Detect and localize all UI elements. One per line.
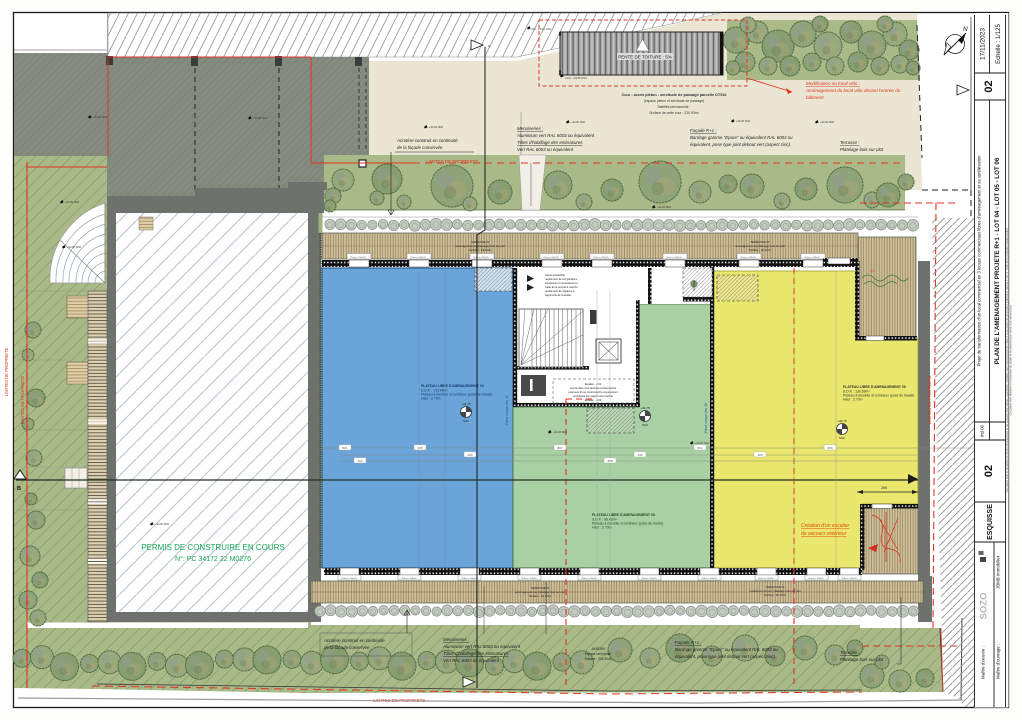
svg-text:Châssis 190x95: Châssis 190x95 — [461, 578, 477, 580]
svg-text:17/11/2023: 17/11/2023 — [980, 28, 987, 60]
svg-text:+34.00 NGF: +34.00 NGF — [657, 205, 672, 209]
svg-text:JBMB Immobilier: JBMB Immobilier — [996, 555, 1001, 589]
svg-text:La première et la dernière con: La première et la dernière contremarche — [570, 386, 617, 390]
svg-text:ESQUISSE: ESQUISSE — [987, 504, 994, 540]
svg-text:Ind 00: Ind 00 — [980, 424, 985, 437]
svg-text:PENTE DE TOITURE : 5%: PENTE DE TOITURE : 5% — [618, 55, 672, 60]
svg-text:Haut : 2.70m: Haut : 2.70m — [843, 398, 863, 402]
svg-text:+34.00 NGF: +34.00 NGF — [820, 120, 835, 124]
svg-text:Châssis 190x95: Châssis 190x95 — [473, 257, 489, 259]
svg-text:Statifiée permanente: Statifiée permanente — [657, 105, 688, 109]
svg-text:B: B — [17, 486, 21, 492]
svg-text:02: 02 — [983, 465, 995, 477]
svg-text:Tôles d'habillage des embrasur: Tôles d'habillage des embrasures — [443, 651, 509, 656]
svg-text:Création d'un escalier: Création d'un escalier — [801, 523, 850, 529]
svg-text:Terrasse :: Terrasse : — [840, 140, 860, 145]
svg-text:Façade R+1 :: Façade R+1 : — [675, 640, 702, 645]
svg-text:Acrotère construit en continui: Acrotère construit en continuité — [396, 138, 458, 143]
svg-text:Surface : 43.23m²: Surface : 43.23m² — [469, 248, 491, 252]
svg-text:N°: PC 34172 22 M0276: N°: PC 34172 22 M0276 — [175, 555, 251, 563]
svg-text:Tôles d'habillage des embrasur: Tôles d'habillage des embrasures — [517, 140, 583, 145]
svg-text:LIMITES DE PROPRIETE: LIMITES DE PROPRIETE — [927, 375, 932, 424]
svg-text:Aménagement du local vélo deva: Aménagement du local vélo devant l'entré… — [805, 88, 901, 93]
svg-text:Châssis 190x95: Châssis 190x95 — [593, 257, 609, 259]
svg-text:+34.00 NGF: +34.00 NGF — [93, 115, 108, 119]
svg-text:+34.75: +34.75 — [461, 402, 471, 406]
svg-text:Châssis 190x95: Châssis 190x95 — [521, 578, 537, 580]
svg-text:+34.00 NGF: +34.00 NGF — [553, 430, 568, 434]
svg-text:+34.75: +34.75 — [837, 419, 847, 423]
svg-text:équivalent, pose type joint de: équivalent, pose type joint debout vert … — [675, 654, 776, 659]
svg-text:Ces plans sont destinés à l'in: Ces plans sont destinés à l'instruction … — [1009, 304, 1013, 415]
svg-text:Menuiseries :: Menuiseries : — [443, 637, 470, 642]
svg-text:PLATEAU LIBRE D'AMENAGEMENT 06: PLATEAU LIBRE D'AMENAGEMENT 06 — [843, 385, 906, 389]
svg-text:Menuiseries :: Menuiseries : — [517, 126, 544, 131]
svg-text:+34.75: +34.75 — [640, 406, 650, 410]
svg-text:Châssis 190x95: Châssis 190x95 — [804, 257, 820, 259]
svg-text:Haut : 2.70m: Haut : 2.70m — [421, 397, 441, 401]
svg-text:+34.00 NGF: +34.00 NGF — [155, 522, 170, 526]
svg-text:Surface : 52.15m²: Surface : 52.15m² — [529, 594, 551, 598]
svg-text:revêtement de sol gravillons: revêtement de sol gravillons — [545, 277, 578, 281]
svg-text:Vert RAL 6003 ou équivalent: Vert RAL 6003 ou équivalent — [517, 147, 574, 152]
svg-text:bâtiment: bâtiment — [806, 95, 824, 100]
svg-text:02: 02 — [983, 80, 995, 92]
svg-text:x: x — [488, 43, 490, 48]
svg-text:Acrot. +34.85 NGF: Acrot. +34.85 NGF — [565, 76, 587, 80]
svg-text:VV: VV — [870, 269, 875, 273]
svg-text:Maître d'ouvrage :: Maître d'ouvrage : — [996, 644, 1001, 679]
svg-text:Modification du local vélo :: Modification du local vélo : — [806, 81, 861, 86]
svg-text:Châssis 190x95: Châssis 190x95 — [841, 578, 857, 580]
svg-text:Echelle : 1/125: Echelle : 1/125 — [996, 23, 1002, 63]
svg-text:PLAN DE L'AMENAGEMENT PROJETE: PLAN DE L'AMENAGEMENT PROJETE R+1 - LOT … — [994, 157, 1001, 364]
svg-text:PLATEAU LIBRE D'AMENAGEMENT 05: PLATEAU LIBRE D'AMENAGEMENT 05 — [592, 513, 655, 517]
svg-text:Châssis 190x95: Châssis 190x95 — [758, 578, 774, 580]
svg-text:Bardage gamme "Epure" ou équiv: Bardage gamme "Epure" ou équivalent RAL … — [675, 647, 778, 652]
svg-text:de la façade conservée: de la façade conservée — [324, 645, 370, 650]
svg-text:Escalier - 2.04: Escalier - 2.04 — [585, 382, 602, 386]
svg-text:460: 460 — [467, 453, 472, 457]
svg-text:+34.00 NGF: +34.00 NGF — [65, 200, 80, 204]
svg-text:+34.00 NGF: +34.00 NGF — [67, 245, 82, 249]
svg-text:Paroi coupe-feu 1h: Paroi coupe-feu 1h — [505, 395, 509, 425]
svg-text:Châssis 190x95: Châssis 190x95 — [410, 257, 426, 259]
svg-text:Acrotère construit en continui: Acrotère construit en continuité — [323, 638, 385, 643]
svg-text:269: 269 — [881, 486, 887, 490]
svg-text:de secours extérieur: de secours extérieur — [801, 531, 847, 537]
svg-text:N: N — [963, 26, 968, 33]
svg-text:contrastée par rapport à la ma: contrastée par rapport à la marche — [573, 394, 613, 398]
svg-text:Châssis 190x95: Châssis 190x95 — [581, 578, 597, 580]
svg-text:(espace piéton et servitude de: (espace piéton et servitude de passage) — [644, 99, 704, 103]
svg-text:Projet de transformation d'un: Projet de transformation d'un local comm… — [977, 155, 982, 367]
svg-text:l'approche de l'escalier: l'approche de l'escalier — [545, 293, 571, 297]
svg-text:Châssis 190x95: Châssis 190x95 — [543, 257, 559, 259]
svg-text:Aprt : 34.8m NGF: Aprt : 34.8m NGF — [531, 27, 552, 31]
svg-text:Châssis 190x95: Châssis 190x95 — [641, 578, 657, 580]
svg-text:Surface de cette cour : 220.93: Surface de cette cour : 220.93m² — [649, 111, 699, 115]
svg-text:LIMITES DE PROPRIETE: LIMITES DE PROPRIETE — [426, 159, 478, 164]
svg-text:Châssis 190x95: Châssis 190x95 — [701, 578, 717, 580]
svg-text:Génie accessible: Génie accessible — [545, 273, 565, 277]
svg-text:SOZO: SOZO — [979, 593, 990, 620]
svg-text:186: 186 — [757, 453, 762, 457]
svg-text:+34.00 NGF: +34.00 NGF — [736, 119, 751, 123]
svg-text:NGF: NGF — [642, 423, 649, 427]
svg-text:+34.00 NGF: +34.00 NGF — [253, 116, 268, 120]
svg-text:équipement et écoulement à: équipement et écoulement à — [545, 281, 578, 285]
svg-text:PLATEAU LIBRE D'AMENAGEMENT 04: PLATEAU LIBRE D'AMENAGEMENT 04 — [421, 384, 484, 388]
svg-text:Aluminium vert RAL 6003 ou équ: Aluminium vert RAL 6003 ou équivalent — [516, 133, 595, 138]
svg-text:Aluminium vert RAL 6003 ou équ: Aluminium vert RAL 6003 ou équivalent — [442, 644, 521, 649]
svg-text:807: 807 — [557, 446, 562, 450]
svg-text:Maître d'oeuvre :: Maître d'oeuvre : — [981, 646, 986, 679]
svg-text:+34.00 NGF: +34.00 NGF — [695, 441, 710, 445]
svg-text:Châssis 190x95: Châssis 190x95 — [740, 257, 756, 259]
svg-text:+34.00 NGF: +34.00 NGF — [571, 120, 586, 124]
svg-text:Platelage bois sur plot: Platelage bois sur plot — [840, 657, 884, 662]
svg-text:JARDIN: JARDIN — [591, 647, 605, 651]
svg-text:Surface : 324.53m²: Surface : 324.53m² — [584, 657, 611, 661]
svg-text:Surface : 40.10m²: Surface : 40.10m² — [749, 248, 771, 252]
svg-text:pourvues d'une contremarche vi: pourvues d'une contremarche visuellement — [568, 390, 618, 394]
svg-text:Haut : 2.70m: Haut : 2.70m — [592, 526, 612, 530]
svg-text:NGF: NGF — [839, 436, 846, 440]
svg-text:Façade R+1 :: Façade R+1 : — [690, 128, 717, 133]
svg-text:502: 502 — [697, 446, 702, 450]
svg-text:Espace vert planté: Espace vert planté — [585, 652, 612, 656]
svg-text:Bardage gamme "Epure" ou équiv: Bardage gamme "Epure" ou équivalent RAL … — [690, 135, 793, 140]
svg-text:+34.00 NGF: +34.00 NGF — [429, 125, 444, 129]
svg-text:équivalent, pose type joint de: équivalent, pose type joint debout vert … — [690, 142, 791, 147]
svg-text:PERMIS DE CONSTRUIRE EN COURS: PERMIS DE CONSTRUIRE EN COURS — [141, 543, 285, 552]
svg-text:Châssis 190x95: Châssis 190x95 — [350, 257, 366, 259]
svg-text:Surface : 40.10m²: Surface : 40.10m² — [764, 593, 786, 597]
svg-text:Châssis 190x95: Châssis 190x95 — [341, 578, 357, 580]
svg-text:LIMITES DE PROPRIETE: LIMITES DE PROPRIETE — [4, 347, 9, 396]
svg-text:259: 259 — [827, 446, 832, 450]
svg-text:Châssis 190x95: Châssis 190x95 — [666, 257, 682, 259]
svg-text:488: 488 — [607, 459, 612, 463]
svg-text:Châssis 190x95: Châssis 190x95 — [808, 578, 824, 580]
svg-text:152: 152 — [357, 459, 362, 463]
svg-text:501: 501 — [342, 446, 347, 450]
svg-text:Cour - accès piéton - servitud: Cour - accès piéton - servitude de passa… — [621, 93, 726, 97]
svg-text:l'aide de la première marche: l'aide de la première marche — [545, 285, 578, 289]
svg-text:LIMITES DE PROPRIETE: LIMITES DE PROPRIETE — [20, 375, 25, 424]
svg-text:495: 495 — [417, 446, 422, 450]
svg-text:NGF: NGF — [463, 419, 470, 423]
svg-text:de la façade conservée: de la façade conservée — [397, 145, 443, 150]
svg-text:revêtement de vigilance à: revêtement de vigilance à — [545, 289, 575, 293]
svg-text:440: 440 — [637, 453, 642, 457]
svg-text:Terrasse :: Terrasse : — [840, 650, 860, 655]
svg-text:Platelage bois sur plot: Platelage bois sur plot — [840, 147, 884, 152]
svg-text:Châssis 190x95: Châssis 190x95 — [401, 578, 417, 580]
svg-text:Paroi coupe-feu 1h: Paroi coupe-feu 1h — [704, 403, 708, 433]
svg-text:Vert RAL 6003 ou équivalent: Vert RAL 6003 ou équivalent — [443, 658, 500, 663]
